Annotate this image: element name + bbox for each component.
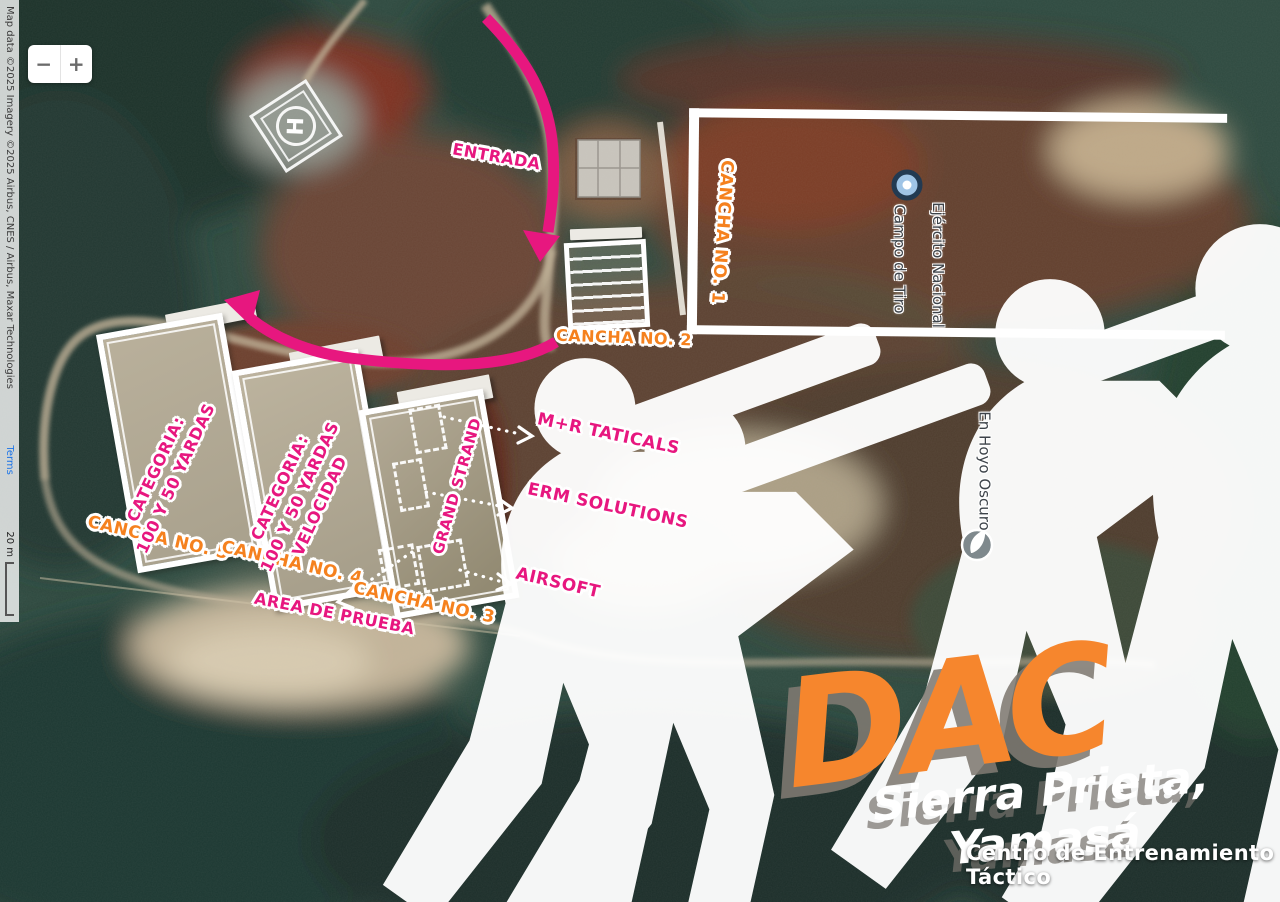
zoom-out-button[interactable]: −	[28, 45, 61, 83]
west-curve-arrow	[224, 290, 556, 365]
label-mr-taticals: M+R TATICALS	[536, 409, 682, 459]
cancha1-boundary	[687, 108, 1227, 340]
scale-text: 20 m	[4, 531, 15, 557]
poi-hoyo-icon[interactable]	[962, 530, 992, 560]
poi-campo-label-line1[interactable]: Campo de Tiro	[891, 204, 909, 313]
label-airsoft: AIRSOFT	[514, 564, 602, 603]
label-erm-solutions: ERM SOLUTIONS	[526, 479, 690, 533]
building-roof	[575, 138, 641, 200]
terms-link[interactable]: Terms	[4, 445, 15, 474]
helipad: H	[249, 79, 343, 173]
poi-campo-icon[interactable]	[894, 172, 920, 198]
entrada-arrow	[486, 18, 560, 262]
helipad-letter: H	[283, 116, 309, 135]
zoom-control: − +	[28, 45, 92, 83]
cancha2-structure	[564, 239, 650, 331]
cancha2-roof	[570, 227, 642, 241]
scale-bar	[5, 562, 14, 616]
attribution-bar: Map data ©2025 Imagery ©2025 Airbus, CNE…	[0, 0, 19, 622]
poi-hoyo-label[interactable]: En Hoyo Oscuro	[976, 411, 994, 530]
label-entrada: ENTRADA	[451, 139, 542, 173]
poi-campo-label-line2[interactable]: Ejército Nacional	[929, 202, 947, 328]
scale-control: 20 m	[4, 531, 15, 616]
label-cancha2: CANCHA NO. 2	[556, 326, 693, 350]
map-attribution: Map data ©2025 Imagery ©2025 Airbus, CNE…	[4, 6, 15, 389]
map-canvas[interactable]: H	[0, 0, 1280, 902]
zoom-in-button[interactable]: +	[61, 45, 93, 83]
logo-tagline: Centro de Entrenamiento Táctico	[966, 841, 1280, 889]
